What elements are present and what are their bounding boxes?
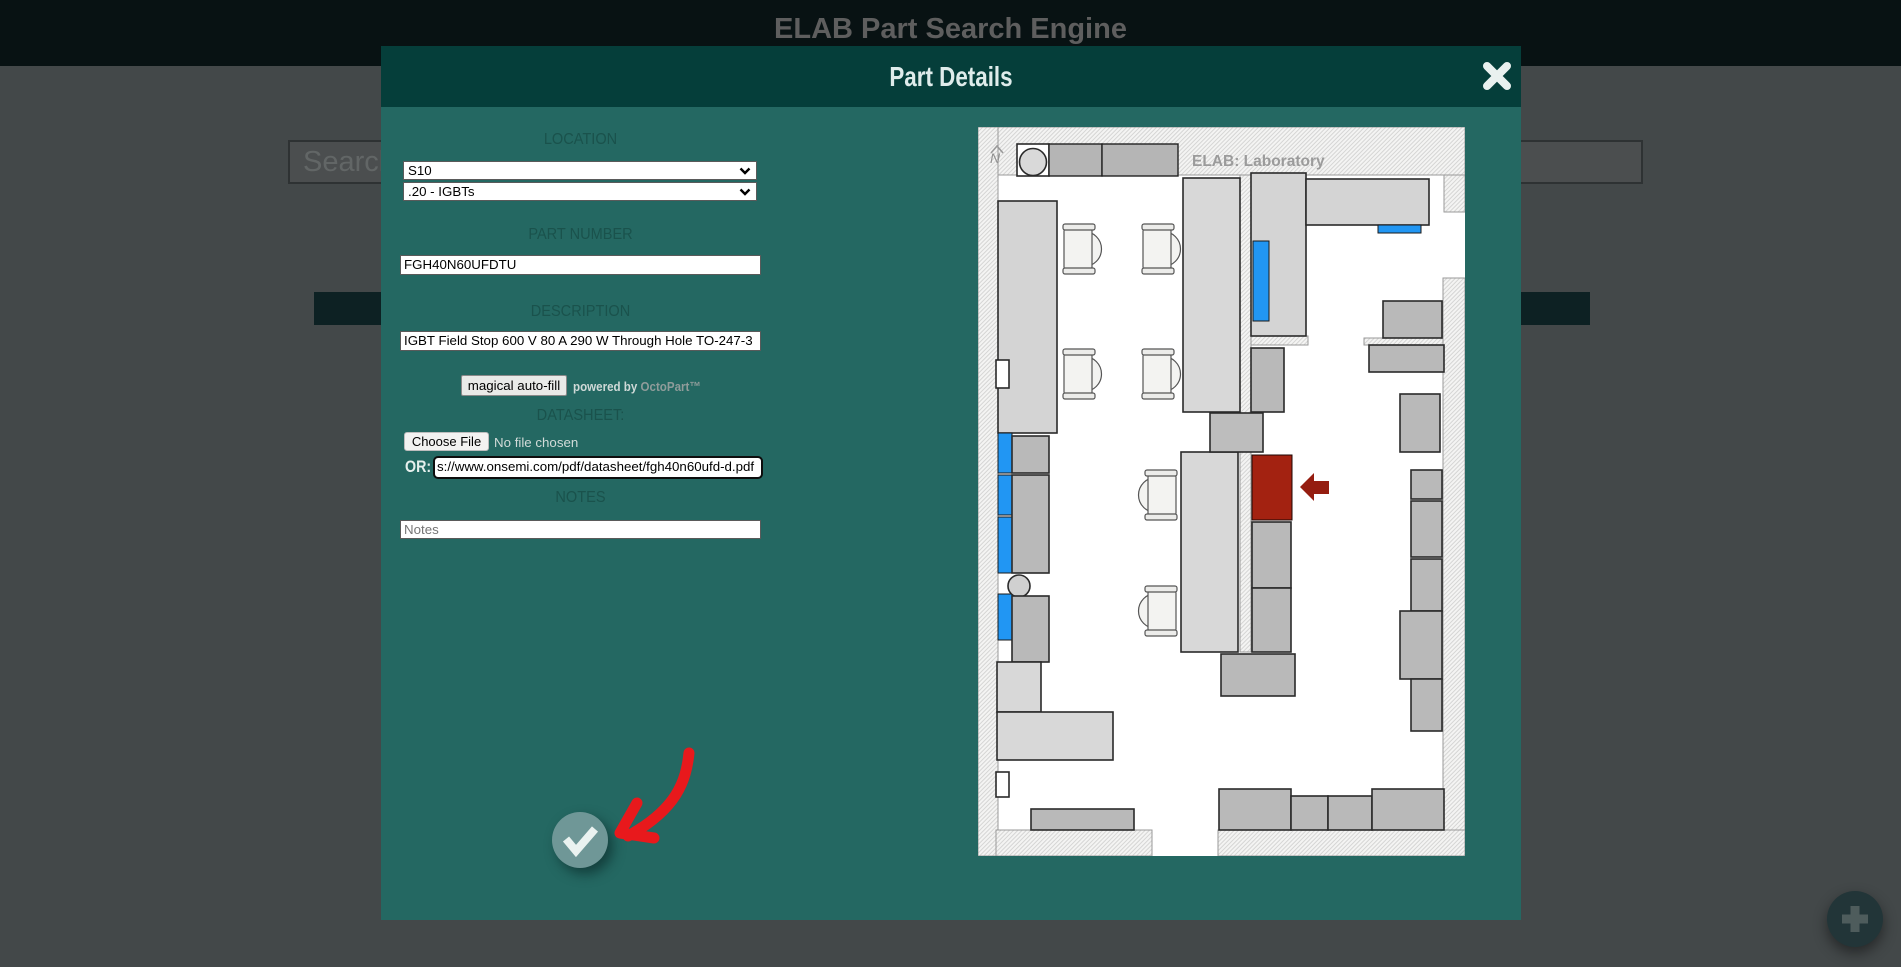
svg-text:ELAB: Laboratory: ELAB: Laboratory	[1192, 153, 1325, 170]
